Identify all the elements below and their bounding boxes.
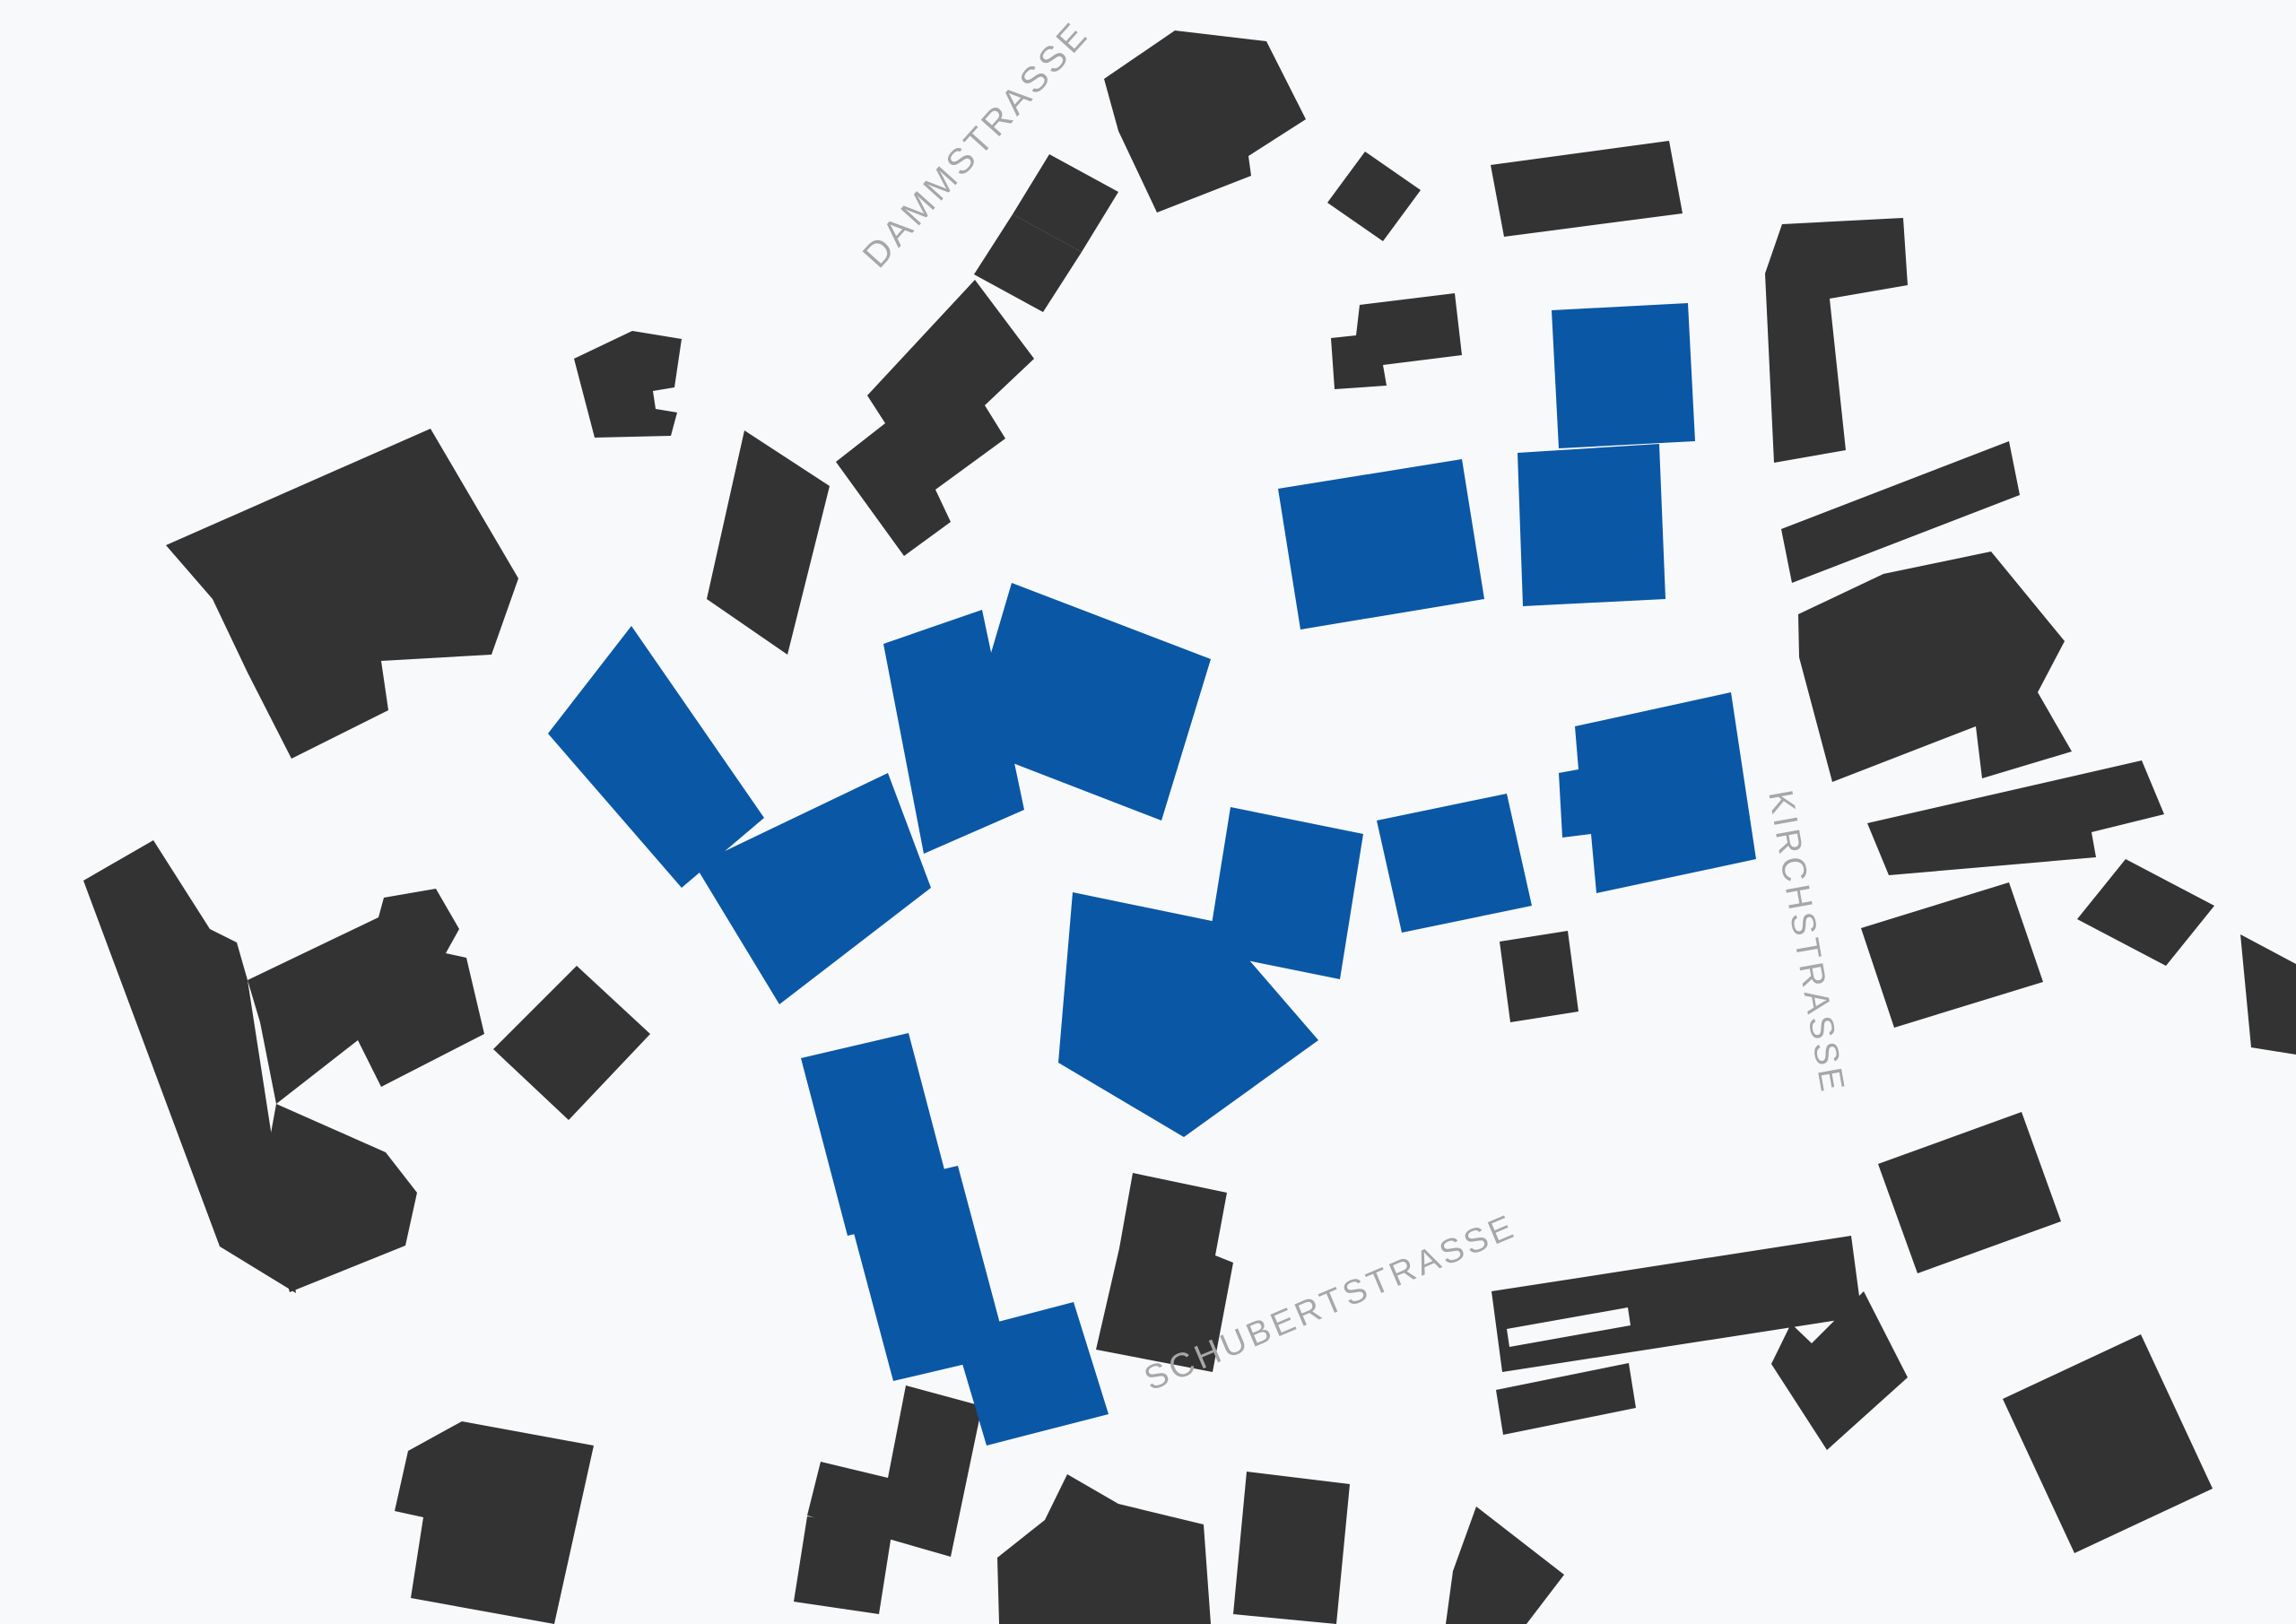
building-blue-ne-lower <box>1518 444 1665 606</box>
building-dark-mid-small <box>1500 931 1578 1022</box>
building-dark-bottom-rect <box>1233 1472 1350 1624</box>
site-plan-canvas: DAMMSTRASSE KIRCHSTRASSE SCHUBERTSTRASSE <box>0 0 2296 1624</box>
site-plan-svg: DAMMSTRASSE KIRCHSTRASSE SCHUBERTSTRASSE <box>0 0 2296 1624</box>
building-blue-rect-top <box>1278 459 1484 630</box>
building-blue-ne-upper <box>1552 303 1695 448</box>
